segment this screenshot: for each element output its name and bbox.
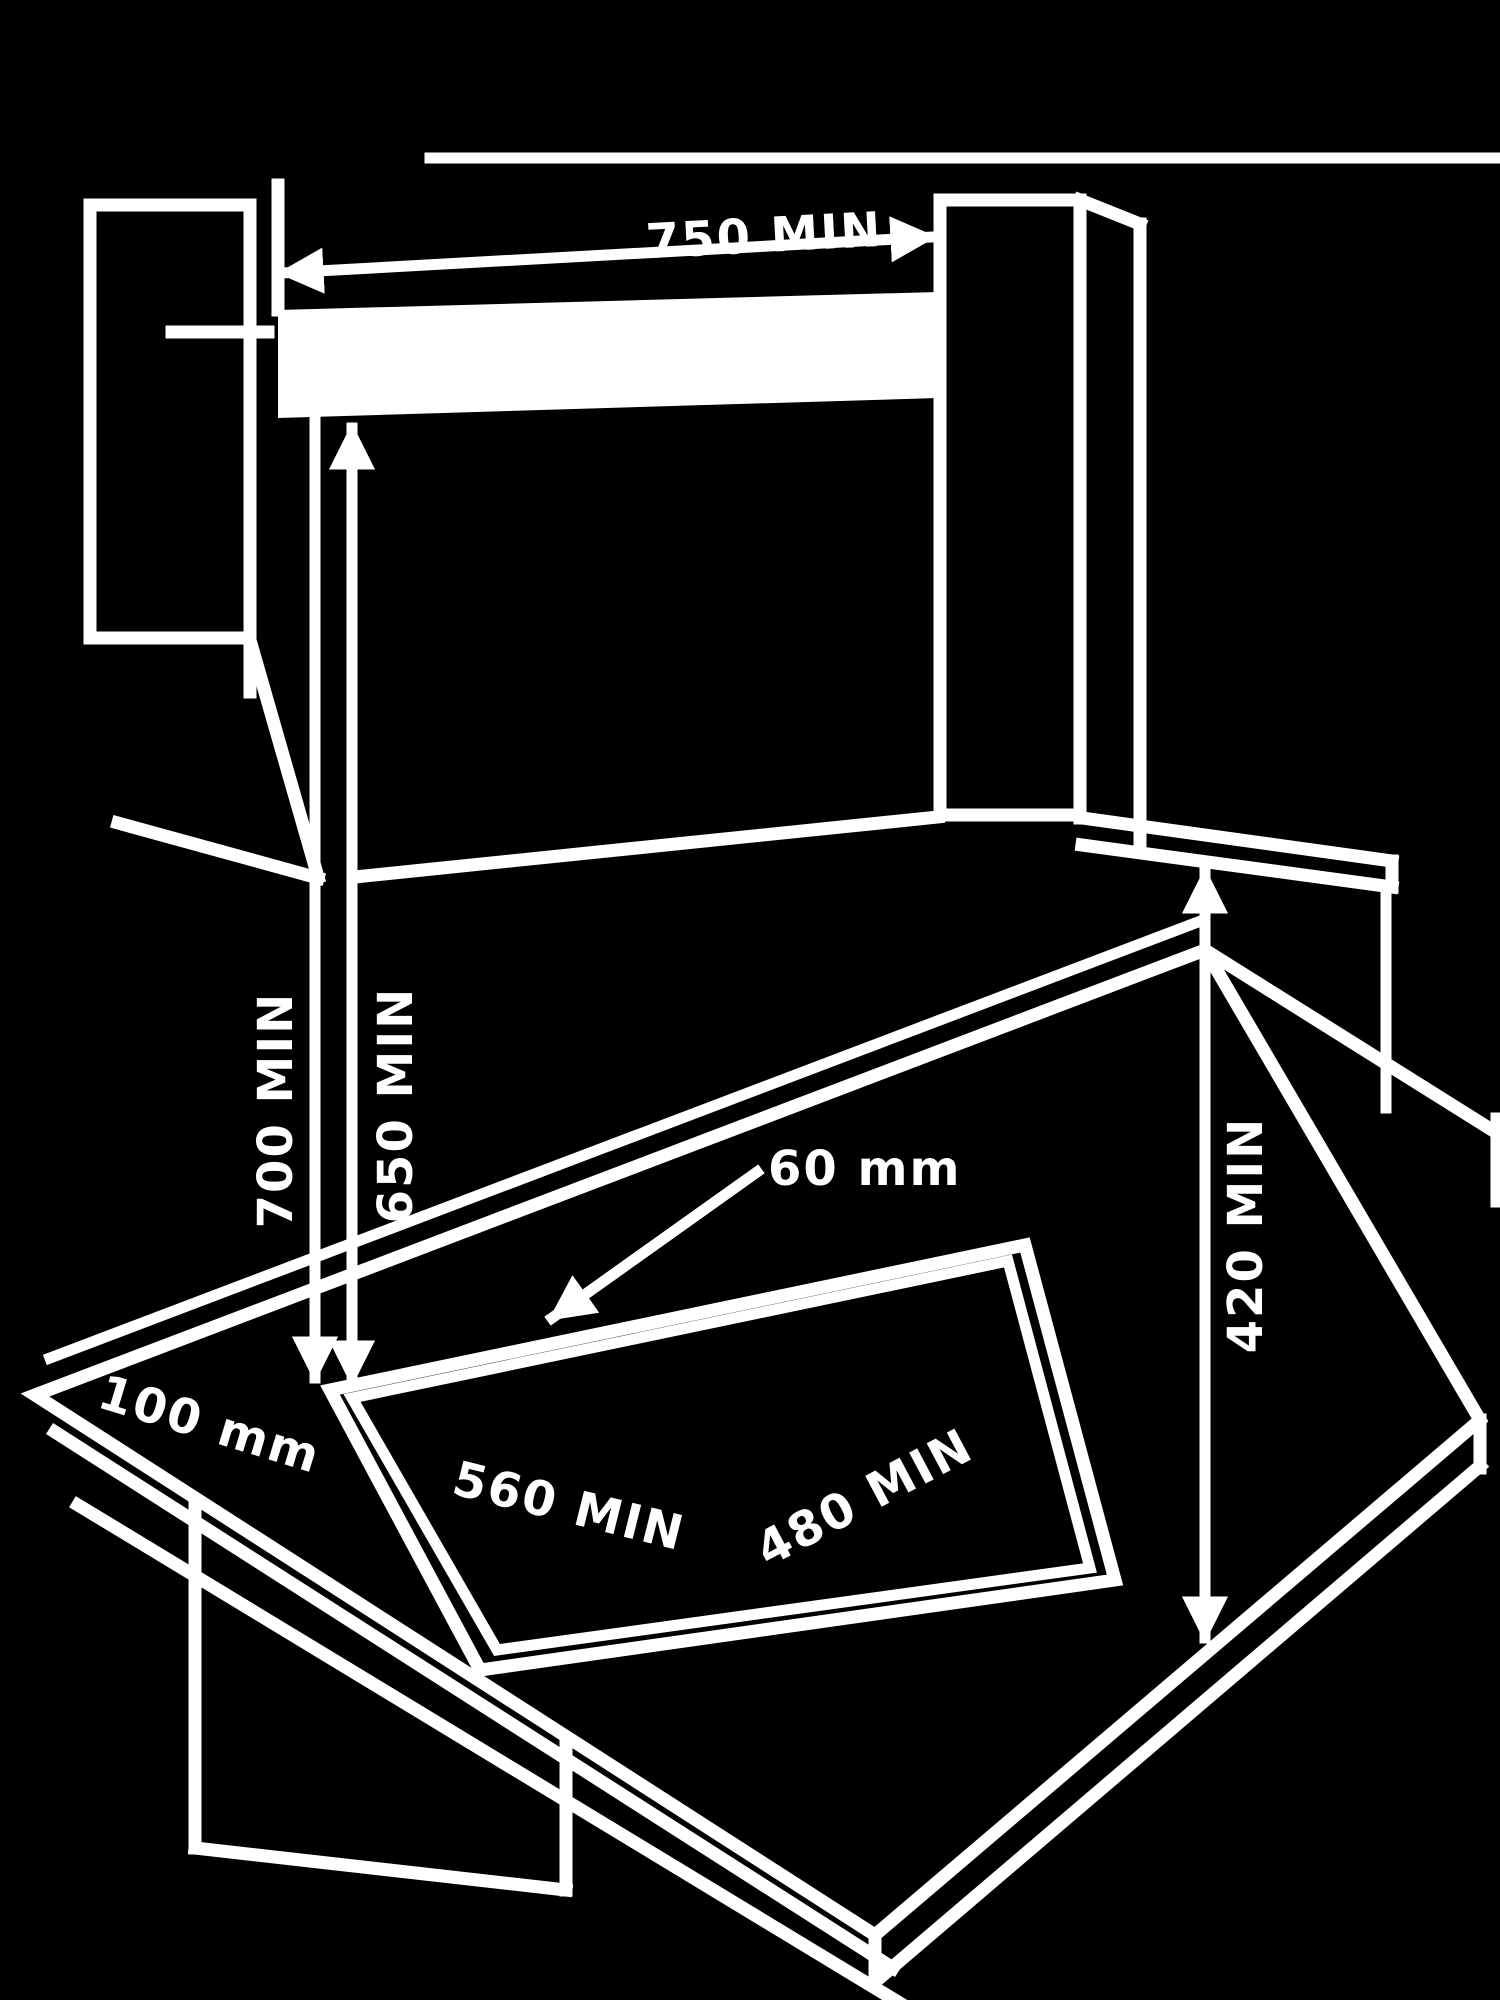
installation-diagram: 750 MIN 700 MIN 650 MIN 420 MIN 60 mm 10… [0, 0, 1500, 2000]
dim-label-side-gap: 100 mm [92, 1364, 327, 1484]
dim-label-niche-width: 750 MIN [645, 202, 884, 270]
dim-label-cutout-depth: 480 MIN [747, 1418, 982, 1579]
dimension-side-gap: 100 mm [92, 1364, 327, 1484]
dim-label-height-with-hood: 650 MIN [368, 987, 424, 1224]
dim-label-side-cabinet-height: 420 MIN [1218, 1117, 1274, 1354]
dimension-cutout-depth: 480 MIN [747, 1418, 982, 1579]
dim-label-height-without-hood: 700 MIN [248, 992, 304, 1229]
dimension-niche-width: 750 MIN [282, 202, 932, 273]
dim-label-cutout-width: 560 MIN [447, 1451, 690, 1563]
hob-cutout [330, 1245, 1115, 1670]
installation-diagram-canvas: 750 MIN 700 MIN 650 MIN 420 MIN 60 mm 10… [0, 0, 1500, 2000]
dim-label-rear-gap: 60 mm [768, 1141, 962, 1197]
right-cabinet [940, 200, 1392, 1108]
dimension-rear-gap: 60 mm [552, 1141, 962, 1318]
dimension-cutout-width: 560 MIN [447, 1451, 690, 1563]
